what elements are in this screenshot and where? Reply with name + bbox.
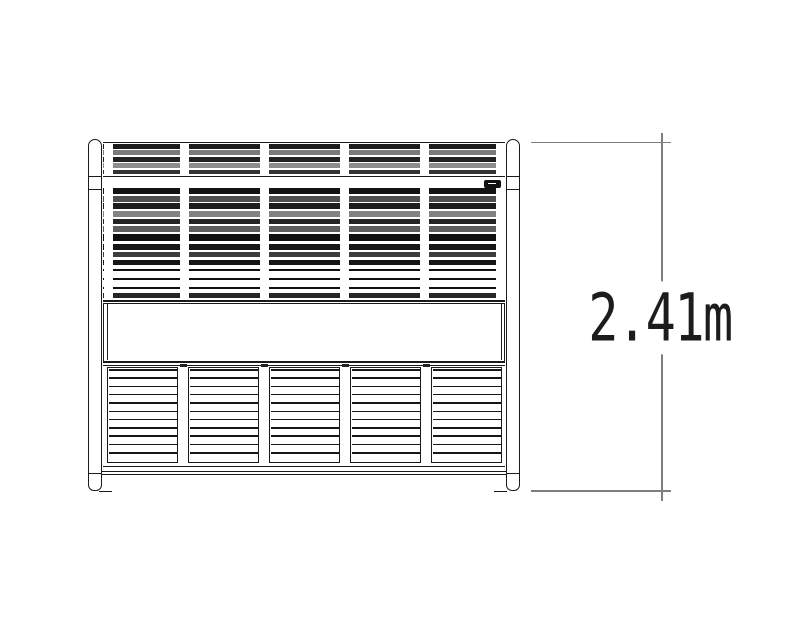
technical-drawing-elevation: 2.41m — [0, 0, 800, 618]
dimension-label: 2.41m — [581, 281, 740, 354]
dimension-annotation: 2.41m — [0, 0, 800, 618]
dimension-extension-line-top — [531, 142, 671, 143]
dimension-extension-line-bottom — [531, 490, 671, 491]
